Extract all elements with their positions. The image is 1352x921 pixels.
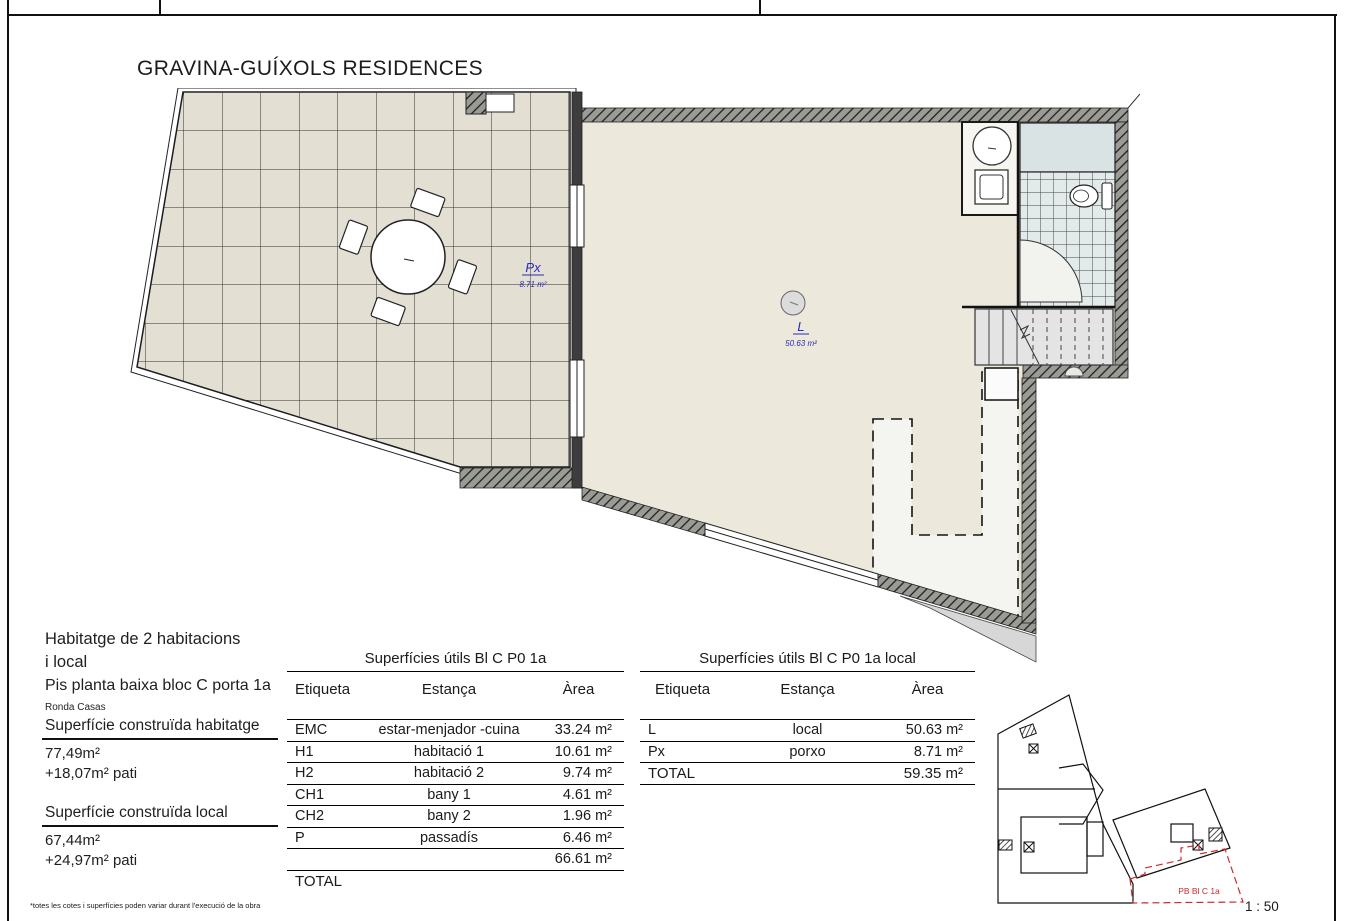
- table-row: CH1bany 14.61 m²: [287, 785, 624, 807]
- built-local-label: Superfície construïda local: [45, 801, 295, 824]
- local-area: 50.63 m²: [785, 339, 817, 348]
- surfaces-table-local: Superfícies útils Bl C P0 1a local Etiqu…: [640, 650, 975, 785]
- table-row: CH2bany 21.96 m²: [287, 806, 624, 828]
- key-plan: PB Bl C 1a: [985, 672, 1273, 910]
- frame-left-border: [7, 0, 9, 921]
- porxo-area: 8.71 m²: [519, 280, 546, 289]
- table-row: Ppassadís6.46 m²: [287, 828, 624, 850]
- frame-right-border: [1334, 14, 1336, 921]
- disclaimer-note: *totes les cotes i superfícies poden var…: [30, 901, 260, 910]
- built-dwelling-label: Superfície construïda habitatge: [45, 714, 295, 737]
- table-row: H2habitació 29.74 m²: [287, 763, 624, 785]
- table-title: Superfícies útils Bl C P0 1a local: [640, 650, 975, 672]
- unit-heading: Habitatge de 2 habitacions i local: [45, 628, 295, 674]
- table-total-row: TOTAL: [287, 871, 624, 893]
- floor-plan: Px 8.71 m² L 50.63 m²: [130, 88, 1140, 668]
- built-local-values: 67,44m² +24,97m² pati: [45, 831, 295, 870]
- table-header: Etiqueta Estança Àrea: [287, 672, 624, 720]
- toilet-icon: [1070, 183, 1112, 209]
- plot-boundary: [1128, 94, 1140, 108]
- key-plan-highlight-unit: PB Bl C 1a: [1130, 845, 1243, 903]
- table-total-row: TOTAL59.35 m²: [640, 763, 975, 785]
- table-header: Etiqueta Estança Àrea: [640, 672, 975, 720]
- table-row: Llocal50.63 m²: [640, 720, 975, 742]
- page-title: GRAVINA-GUÍXOLS RESIDENCES: [137, 57, 483, 81]
- key-plan-unit-label: PB Bl C 1a: [1178, 886, 1220, 896]
- table-title: Superfícies útils Bl C P0 1a: [287, 650, 624, 672]
- key-plan-cores: [999, 724, 1222, 852]
- rule: [42, 825, 278, 827]
- patio-porxo: [131, 88, 576, 473]
- scale-label: 1 : 50: [1245, 899, 1279, 914]
- stairs: [975, 309, 1113, 365]
- rule: [42, 738, 278, 740]
- local-label: L: [797, 319, 804, 334]
- u-region-cap: [985, 368, 1018, 400]
- column-symbol: [781, 291, 805, 315]
- shower: [1020, 123, 1115, 172]
- table-row: H1habitació 110.61 m²: [287, 742, 624, 764]
- washer-icon: [973, 127, 1011, 165]
- surfaces-table-dwelling: Superfícies útils Bl C P0 1a Etiqueta Es…: [287, 650, 624, 892]
- table-row: Pxporxo8.71 m²: [640, 742, 975, 764]
- titleblock-divider-1: [159, 0, 161, 14]
- pillar: [466, 92, 514, 114]
- table-row: EMCestar-menjador -cuina33.24 m²: [287, 720, 624, 742]
- built-dwelling-values: 77,49m² +18,07m² pati: [45, 744, 295, 783]
- table-subtotal-row: 66.61 m²: [287, 849, 624, 871]
- frame-top-border: [7, 14, 1337, 16]
- unit-subheading: Pis planta baixa bloc C porta 1a: [45, 674, 295, 697]
- titleblock-divider-2: [759, 0, 761, 14]
- porxo-label: Px: [525, 260, 541, 275]
